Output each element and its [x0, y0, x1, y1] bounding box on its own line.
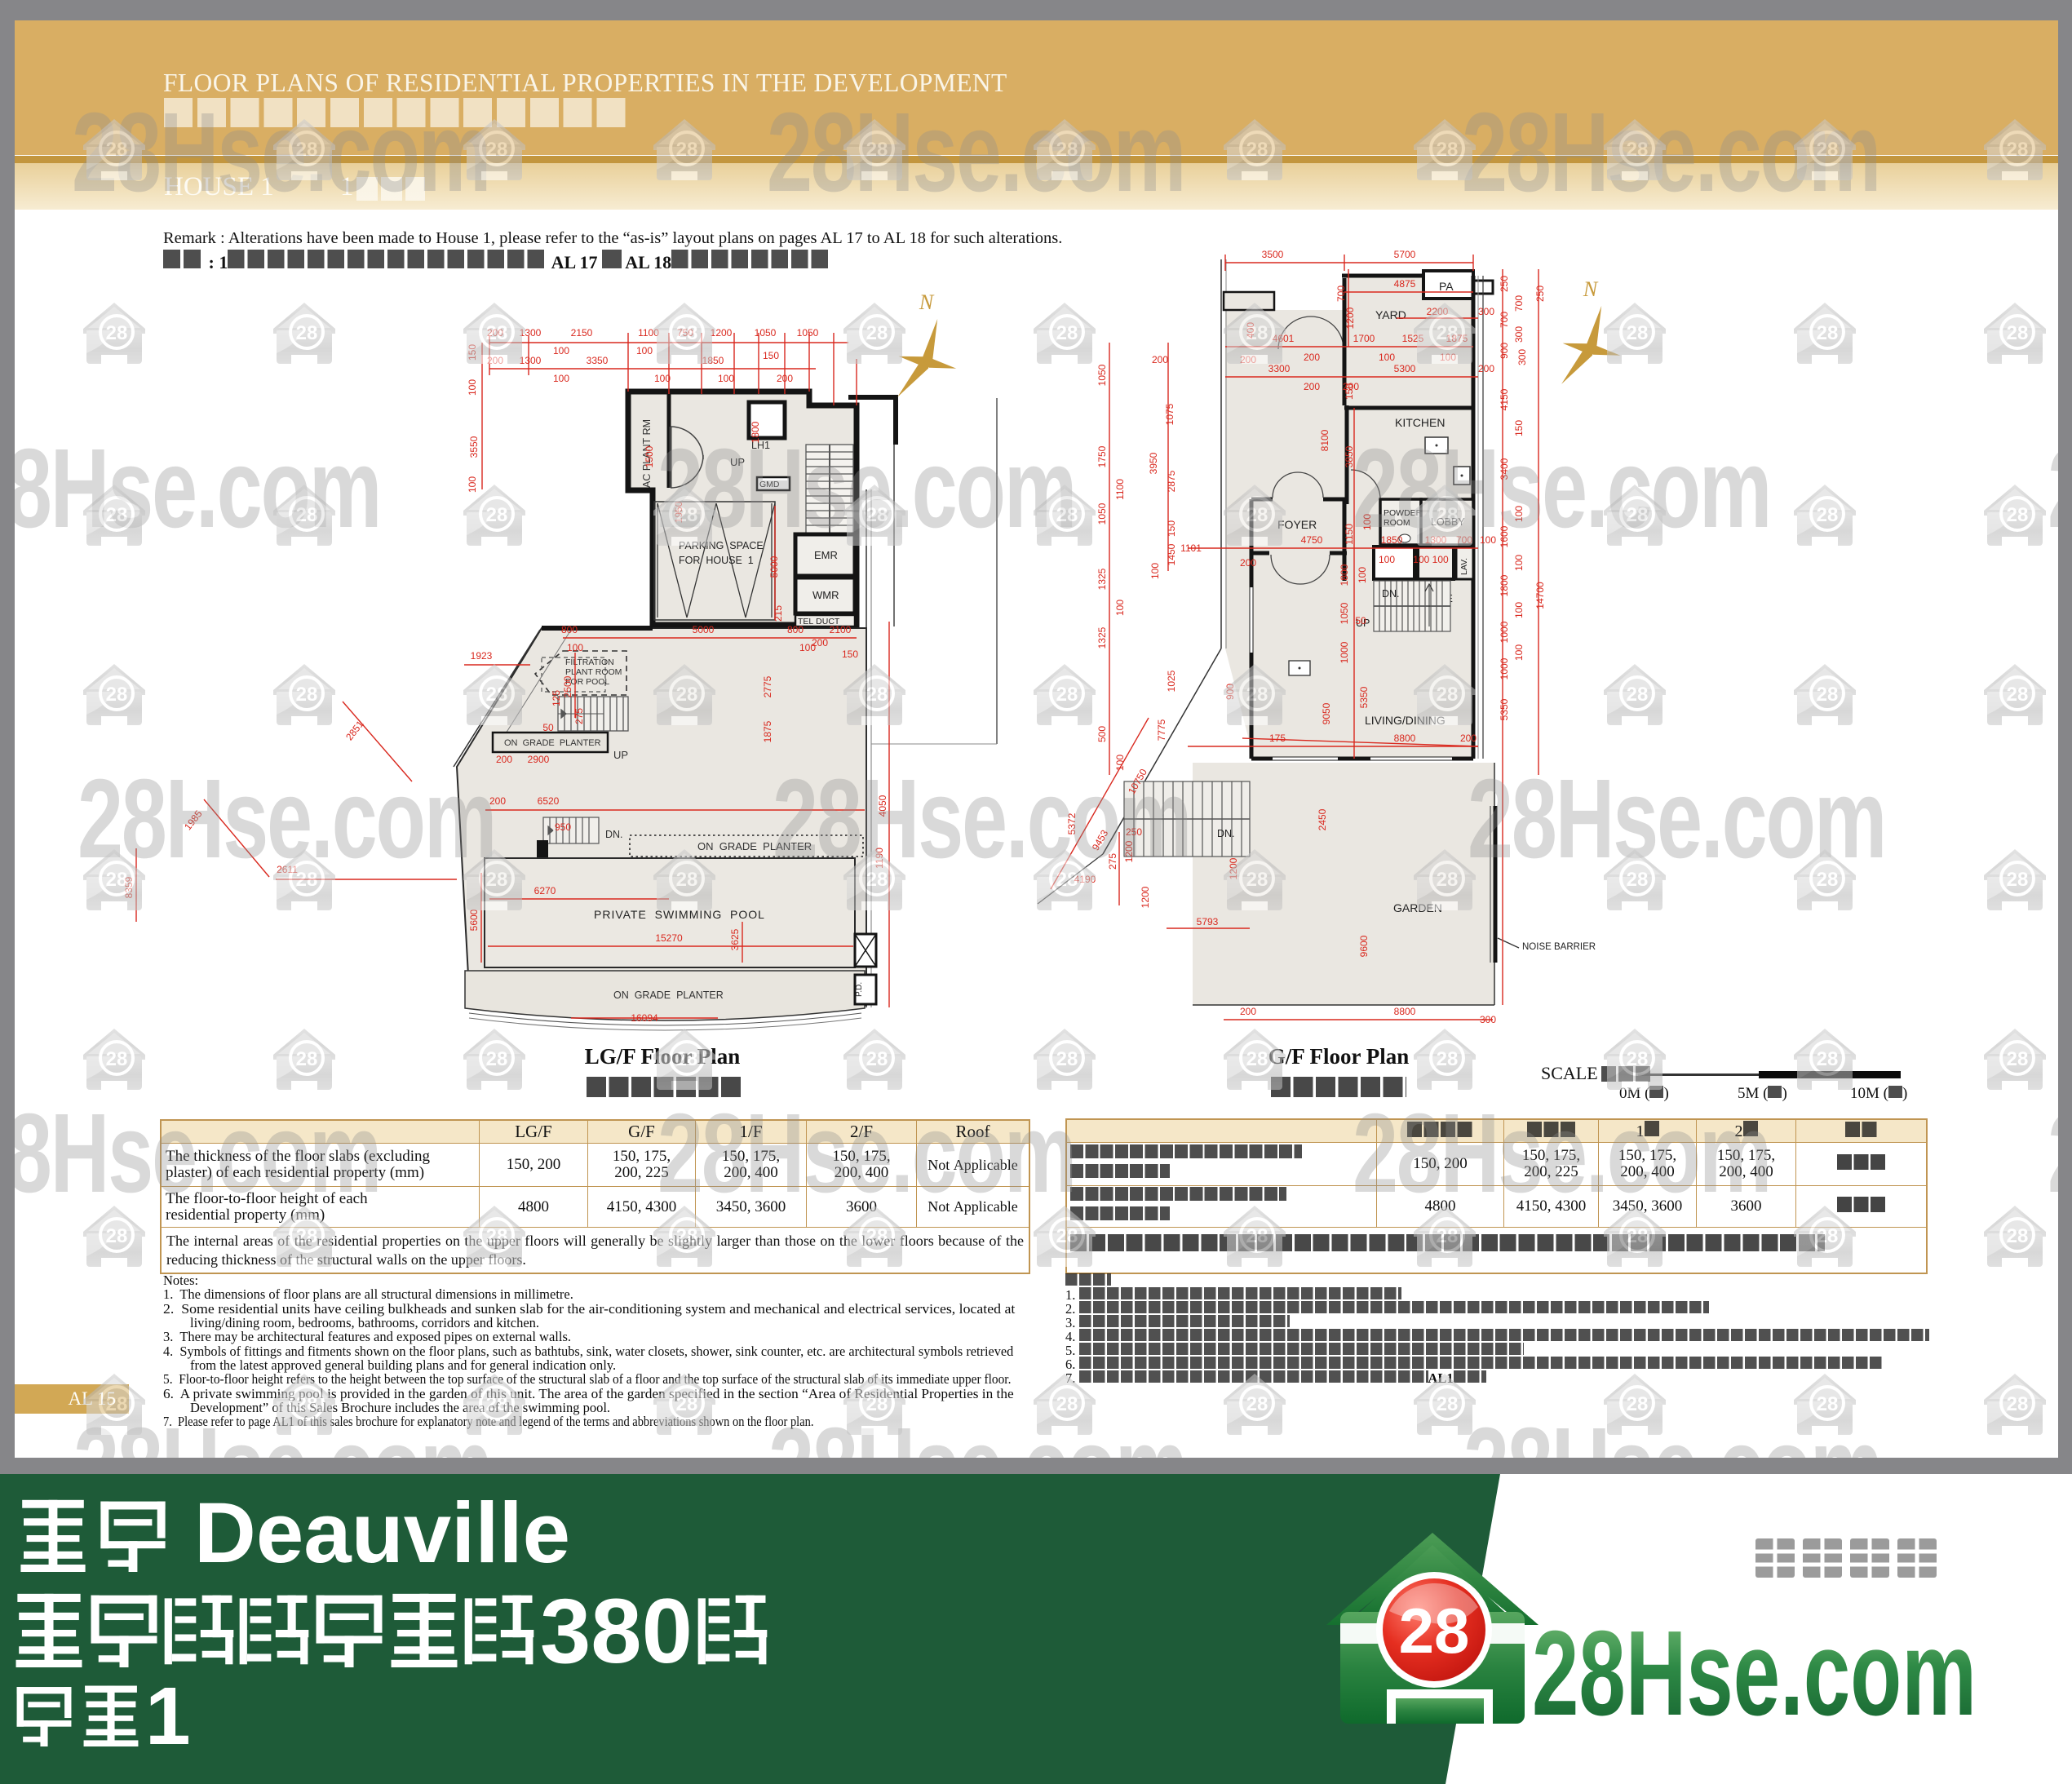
- svg-text:28Hse.com: 28Hse.com: [1532, 1606, 1977, 1741]
- svg-text:100: 100: [1513, 506, 1525, 522]
- svg-text:1000: 1000: [1339, 641, 1350, 663]
- svg-text:1100: 1100: [638, 327, 659, 339]
- svg-text:DN.: DN.: [605, 829, 623, 840]
- svg-text:DN.: DN.: [1217, 828, 1235, 839]
- svg-text:KITCHEN: KITCHEN: [1395, 416, 1445, 429]
- svg-text:700: 700: [1335, 286, 1347, 302]
- svg-text:700: 700: [1499, 312, 1510, 328]
- svg-text:100: 100: [1513, 602, 1525, 618]
- svg-text:100: 100: [718, 373, 734, 384]
- svg-text:8800: 8800: [1394, 733, 1416, 744]
- svg-text:15270: 15270: [655, 932, 683, 944]
- svg-text:5300: 5300: [1394, 363, 1416, 374]
- svg-text:3625: 3625: [729, 928, 741, 950]
- svg-text:6520: 6520: [538, 795, 560, 807]
- svg-text:2200: 2200: [1427, 306, 1449, 317]
- svg-text:1200: 1200: [1140, 886, 1151, 908]
- svg-text:100: 100: [654, 373, 671, 384]
- svg-text:YARD: YARD: [1375, 308, 1406, 321]
- svg-text:100: 100: [636, 345, 653, 356]
- svg-text:200: 200: [1240, 557, 1256, 569]
- svg-text:5793: 5793: [1197, 916, 1219, 927]
- svg-text:700: 700: [1456, 534, 1472, 546]
- svg-text:1050: 1050: [797, 327, 819, 339]
- svg-text:2611: 2611: [277, 864, 298, 875]
- svg-text:1600: 1600: [1499, 525, 1510, 547]
- svg-text:1450: 1450: [1166, 543, 1177, 565]
- svg-text:400: 400: [1245, 322, 1256, 339]
- svg-text:1300: 1300: [520, 355, 542, 366]
- svg-text:100: 100: [1379, 554, 1395, 565]
- svg-text:100: 100: [567, 642, 583, 653]
- svg-text:100: 100: [553, 345, 569, 356]
- svg-text:125: 125: [551, 690, 562, 706]
- svg-text:1300: 1300: [520, 327, 542, 339]
- svg-text:900: 900: [1499, 343, 1510, 359]
- svg-text:N: N: [1583, 277, 1599, 301]
- svg-text:5000: 5000: [768, 556, 780, 578]
- svg-text:100 100: 100 100: [1413, 554, 1449, 565]
- svg-text:3500: 3500: [1262, 249, 1284, 260]
- svg-text:200: 200: [489, 795, 506, 807]
- svg-text:2100: 2100: [830, 624, 852, 635]
- svg-text:100: 100: [1513, 644, 1525, 661]
- svg-text:EMR: EMR: [814, 549, 838, 561]
- svg-text:FILTRATION: FILTRATION: [565, 657, 614, 667]
- svg-text:1101: 1101: [1180, 542, 1202, 554]
- svg-text:1150: 1150: [1344, 524, 1355, 545]
- svg-text:100: 100: [467, 379, 478, 396]
- svg-text:1200: 1200: [1228, 857, 1239, 879]
- svg-text:200: 200: [812, 637, 828, 649]
- svg-text:1923: 1923: [471, 650, 493, 662]
- svg-text:100: 100: [1379, 352, 1395, 363]
- svg-text:LIVING/DINING: LIVING/DINING: [1365, 714, 1446, 727]
- svg-text:100: 100: [1361, 514, 1373, 530]
- svg-text:900: 900: [1224, 684, 1236, 700]
- svg-text:ON GRADE PLANTER: ON GRADE PLANTER: [613, 989, 724, 1001]
- svg-text:275: 275: [573, 708, 585, 724]
- svg-text:300: 300: [1480, 1014, 1496, 1025]
- svg-text:1875: 1875: [762, 720, 773, 742]
- svg-text:NOISE BARRIER: NOISE BARRIER: [1522, 942, 1596, 952]
- svg-text:200: 200: [1152, 354, 1168, 365]
- svg-text:200: 200: [1240, 354, 1256, 365]
- svg-text:2500: 2500: [562, 675, 573, 697]
- svg-text:9050: 9050: [1321, 702, 1332, 724]
- svg-text:5372: 5372: [1066, 812, 1078, 834]
- svg-text:LAV.: LAV.: [1459, 558, 1469, 575]
- svg-text:200: 200: [1304, 381, 1320, 392]
- svg-text:2775: 2775: [762, 675, 773, 697]
- svg-text:7775: 7775: [1156, 719, 1167, 741]
- svg-text:1850: 1850: [702, 355, 724, 366]
- svg-text:150: 150: [1513, 420, 1525, 436]
- svg-text:100: 100: [1513, 555, 1525, 571]
- svg-text:POWDER: POWDER: [1384, 508, 1423, 518]
- svg-text:4150: 4150: [1499, 388, 1510, 410]
- svg-text:1800: 1800: [1499, 574, 1510, 596]
- svg-text:5600: 5600: [468, 909, 480, 931]
- svg-text:UP: UP: [730, 456, 745, 468]
- svg-text:1075: 1075: [1164, 403, 1175, 425]
- svg-text:1: 1: [145, 1671, 191, 1762]
- svg-text:200: 200: [1240, 1006, 1256, 1017]
- svg-text:700: 700: [1513, 295, 1525, 312]
- svg-text:1850: 1850: [1381, 534, 1403, 546]
- svg-text:200: 200: [496, 754, 512, 765]
- svg-text:1050: 1050: [1339, 602, 1350, 624]
- svg-text:250: 250: [1499, 276, 1510, 292]
- svg-text:200: 200: [487, 355, 503, 366]
- svg-text:150: 150: [467, 344, 478, 361]
- svg-text:14700: 14700: [1534, 582, 1546, 609]
- svg-text:200: 200: [1460, 733, 1477, 744]
- svg-text:PLANT ROOM: PLANT ROOM: [565, 667, 622, 677]
- svg-text:1000: 1000: [1499, 657, 1510, 680]
- svg-text:275: 275: [1107, 853, 1118, 870]
- svg-text:150: 150: [1344, 383, 1355, 400]
- svg-text:300: 300: [1478, 306, 1494, 317]
- svg-text:200: 200: [1304, 352, 1320, 363]
- svg-text:2851: 2851: [343, 718, 366, 742]
- svg-text:1800: 1800: [750, 421, 761, 443]
- svg-text:50: 50: [1355, 615, 1366, 626]
- svg-text:3850: 3850: [1344, 445, 1355, 467]
- svg-text:800: 800: [787, 624, 804, 635]
- svg-text:100: 100: [467, 476, 478, 493]
- svg-text:FOYER: FOYER: [1277, 518, 1317, 531]
- svg-text:250: 250: [1126, 826, 1142, 838]
- svg-text:200: 200: [1478, 363, 1494, 374]
- svg-text:UP: UP: [613, 749, 628, 761]
- svg-text:4601: 4601: [1273, 333, 1295, 344]
- svg-text:2450: 2450: [1317, 808, 1328, 830]
- svg-text:4190: 4190: [1074, 874, 1096, 885]
- svg-text:Deauville: Deauville: [194, 1485, 570, 1581]
- svg-text:3950: 3950: [1148, 452, 1159, 474]
- svg-text:1200: 1200: [1344, 307, 1356, 329]
- svg-text:300: 300: [1516, 349, 1528, 365]
- svg-text:50: 50: [542, 722, 554, 733]
- svg-text:750: 750: [677, 327, 693, 339]
- svg-text:1025: 1025: [1166, 670, 1177, 692]
- svg-text:ON GRADE PLANTER: ON GRADE PLANTER: [504, 738, 601, 748]
- svg-text:PARKING SPACE: PARKING SPACE: [679, 540, 764, 551]
- svg-text:1950: 1950: [673, 501, 684, 523]
- svg-text:1000: 1000: [1499, 621, 1510, 643]
- svg-text:1200: 1200: [1123, 840, 1135, 862]
- svg-text:8100: 8100: [1319, 429, 1330, 451]
- svg-text:PA: PA: [1439, 280, 1454, 293]
- svg-text:1300: 1300: [1425, 534, 1447, 546]
- svg-text:1985: 1985: [182, 808, 205, 832]
- svg-text:16094: 16094: [631, 1012, 658, 1024]
- svg-text:1200: 1200: [711, 327, 733, 339]
- svg-text:8359: 8359: [123, 876, 135, 898]
- svg-text:1875: 1875: [1446, 333, 1468, 344]
- svg-text:5350: 5350: [1358, 686, 1370, 708]
- svg-text:380: 380: [540, 1580, 693, 1682]
- svg-text:250: 250: [1534, 286, 1546, 302]
- svg-text:FOR HOUSE 1: FOR HOUSE 1: [679, 555, 754, 566]
- svg-text:5000: 5000: [693, 624, 715, 635]
- svg-text:1800: 1800: [1339, 564, 1350, 586]
- svg-text:100: 100: [1440, 352, 1456, 363]
- svg-text:200: 200: [487, 327, 503, 339]
- svg-text:5350: 5350: [1499, 698, 1510, 720]
- svg-text:800: 800: [561, 624, 578, 635]
- svg-text:9600: 9600: [1358, 935, 1370, 957]
- svg-text:150: 150: [1166, 520, 1177, 537]
- svg-text:ROOM: ROOM: [1384, 518, 1410, 528]
- svg-text:LOBBY: LOBBY: [1431, 516, 1465, 528]
- svg-text:DN.: DN.: [1382, 588, 1400, 600]
- svg-text:100: 100: [1480, 534, 1496, 546]
- svg-text:3300: 3300: [1268, 363, 1291, 374]
- svg-text:2875: 2875: [1166, 470, 1177, 492]
- svg-text:100: 100: [1357, 567, 1368, 583]
- svg-text:215: 215: [773, 605, 784, 622]
- svg-text:ON GRADE PLANTER: ON GRADE PLANTER: [697, 840, 812, 852]
- svg-text:6270: 6270: [534, 885, 556, 896]
- svg-text:200: 200: [777, 373, 793, 384]
- svg-text:3400: 3400: [1499, 458, 1510, 480]
- svg-text:5700: 5700: [1394, 249, 1416, 260]
- svg-text:2900: 2900: [528, 754, 550, 765]
- svg-text:1500: 1500: [644, 445, 655, 467]
- svg-text:4750: 4750: [1301, 534, 1323, 546]
- svg-text:1050: 1050: [755, 327, 777, 339]
- svg-text:GARDEN: GARDEN: [1393, 901, 1442, 914]
- svg-text:WMR: WMR: [812, 589, 839, 601]
- svg-text:300: 300: [1513, 326, 1525, 343]
- svg-text:3550: 3550: [468, 436, 480, 458]
- svg-text:100: 100: [1149, 563, 1161, 579]
- svg-text:100: 100: [553, 373, 569, 384]
- svg-text:175: 175: [1269, 733, 1286, 744]
- svg-text:4875: 4875: [1394, 278, 1416, 290]
- svg-text:150: 150: [763, 350, 779, 361]
- svg-text:8800: 8800: [1394, 1006, 1416, 1017]
- svg-text:28: 28: [1399, 1595, 1470, 1667]
- svg-text:PRIVATE SWIMMING POOL: PRIVATE SWIMMING POOL: [594, 908, 765, 921]
- svg-text:2150: 2150: [571, 327, 593, 339]
- svg-text:3350: 3350: [587, 355, 609, 366]
- svg-text:1700: 1700: [1353, 333, 1375, 344]
- svg-text:GMD: GMD: [759, 480, 780, 489]
- svg-text:9453: 9453: [1090, 828, 1111, 852]
- svg-text:950: 950: [555, 821, 571, 833]
- svg-text:1525: 1525: [1402, 333, 1424, 344]
